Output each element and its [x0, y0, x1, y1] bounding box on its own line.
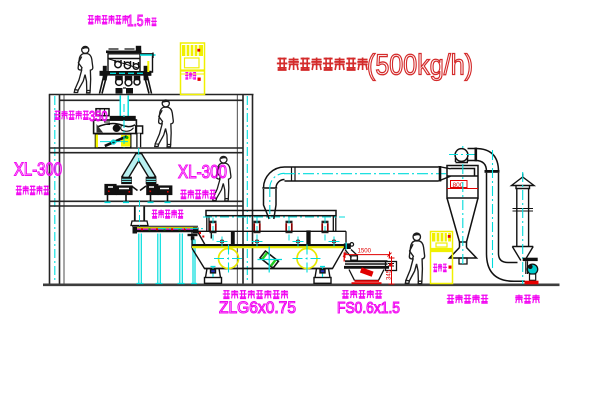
- svg-text:345: 345: [387, 269, 393, 280]
- svg-text:350: 350: [89, 108, 108, 125]
- svg-text:1.5: 1.5: [127, 13, 144, 30]
- svg-text:XL-300: XL-300: [178, 161, 227, 182]
- svg-text:ZLG6x0.75: ZLG6x0.75: [219, 298, 296, 317]
- svg-text:1500: 1500: [358, 247, 372, 254]
- svg-text:XL-300: XL-300: [14, 159, 62, 180]
- svg-text:800: 800: [453, 182, 464, 189]
- svg-text:(500kg/h): (500kg/h): [367, 50, 473, 82]
- svg-text:FS0.6x1.5: FS0.6x1.5: [337, 300, 400, 317]
